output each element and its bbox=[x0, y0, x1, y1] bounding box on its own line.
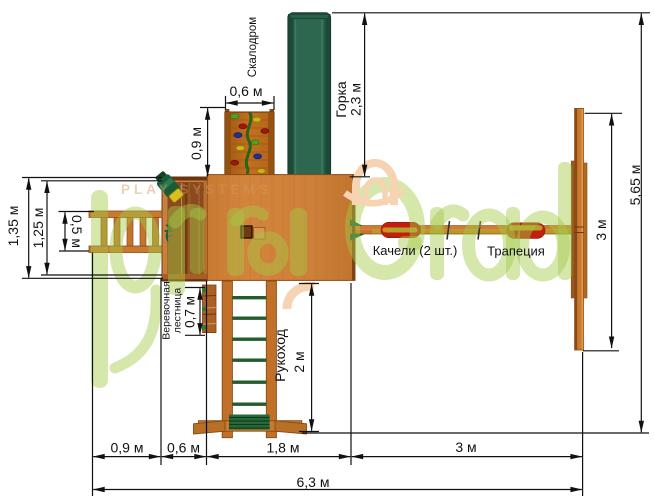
svg-text:Скалодром: Скалодром bbox=[247, 17, 259, 77]
svg-text:2 м: 2 м bbox=[291, 351, 307, 372]
svg-text:0,7 м: 0,7 м bbox=[183, 296, 198, 328]
svg-text:0,9 м: 0,9 м bbox=[111, 440, 144, 456]
svg-text:PLAY SYSTEMS: PLAY SYSTEMS bbox=[121, 182, 272, 197]
svg-text:0,5 м: 0,5 м bbox=[69, 215, 85, 248]
svg-text:Трапеция: Трапеция bbox=[487, 244, 545, 259]
svg-text:2,3 м: 2,3 м bbox=[348, 83, 364, 116]
svg-text:3 м: 3 м bbox=[455, 439, 476, 455]
svg-text:5,65 м: 5,65 м bbox=[627, 165, 643, 206]
svg-text:1,25 м: 1,25 м bbox=[30, 208, 46, 249]
svg-text:Рукоход: Рукоход bbox=[272, 329, 288, 382]
svg-text:0,6 м: 0,6 м bbox=[230, 83, 263, 99]
svg-text:1,8 м: 1,8 м bbox=[267, 440, 300, 456]
svg-text:0,6 м: 0,6 м bbox=[167, 440, 200, 456]
svg-text:1,35 м: 1,35 м bbox=[5, 206, 21, 247]
svg-text:Качели (2 шт.): Качели (2 шт.) bbox=[373, 243, 458, 258]
svg-text:0,9 м: 0,9 м bbox=[188, 127, 204, 160]
svg-text:3 м: 3 м bbox=[593, 219, 609, 240]
svg-text:6,3 м: 6,3 м bbox=[297, 474, 330, 490]
